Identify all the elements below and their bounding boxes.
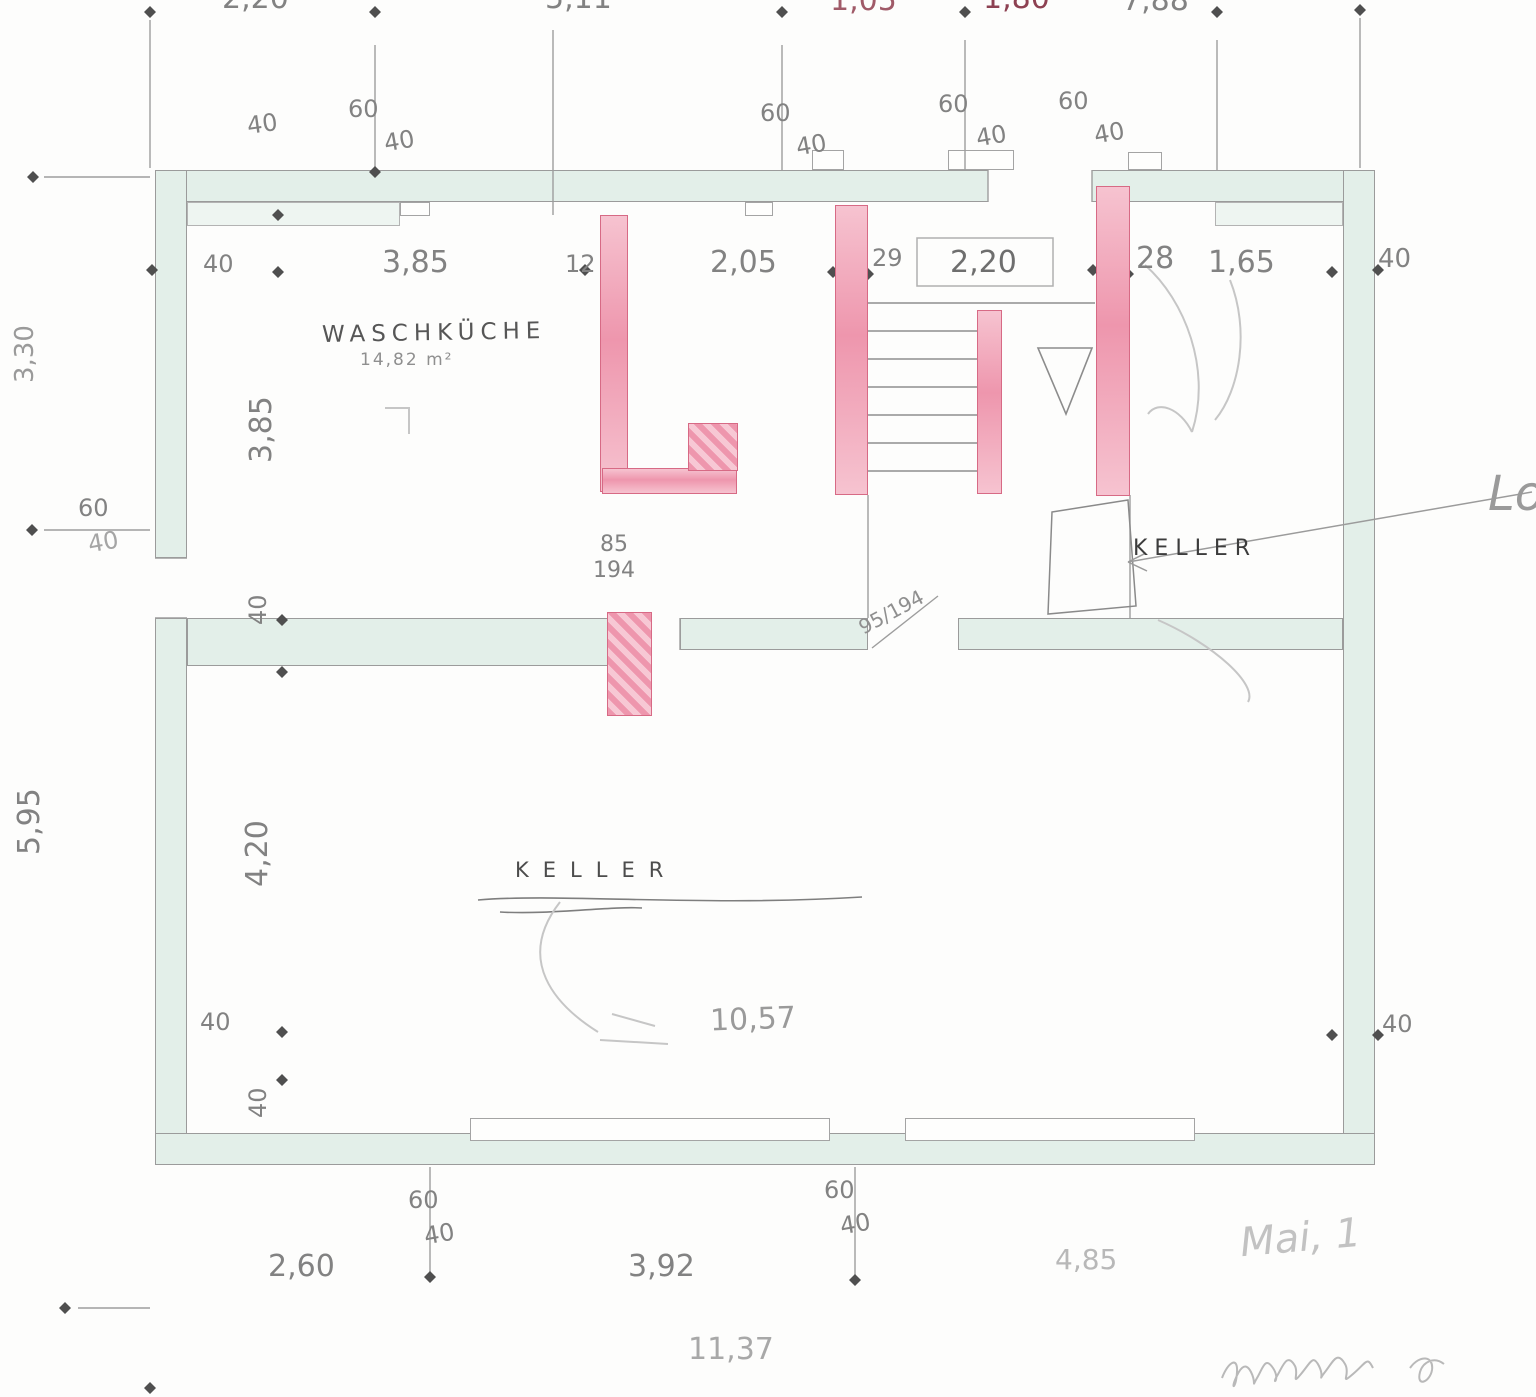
dim-top-inner-385: 3,85 <box>382 248 449 278</box>
wall-pair-label: 60 <box>78 496 109 520</box>
room-label-keller-small: KELLER <box>1133 538 1257 560</box>
dim-interior-width: 10,57 <box>710 1004 797 1037</box>
wall-pair-label: 40 <box>422 1220 456 1249</box>
room-area-waschkueche: 14,82 m² <box>360 352 453 369</box>
wall-pair-label: 60 <box>824 1178 855 1202</box>
dim-top-outer-5: 7,88 <box>1122 0 1189 16</box>
wall-pair-label: 60 <box>348 97 379 121</box>
wall-pair-label: 40 <box>382 127 416 156</box>
dim-left-inner-420: 4,20 <box>243 817 273 887</box>
dim-bottom-260: 2,60 <box>268 1252 335 1282</box>
wall-pair-label: 60 <box>408 1188 439 1212</box>
room-label-waschkueche: WASCHKÜCHE <box>322 320 547 347</box>
dim-left-inner-40c: 40 <box>246 1068 270 1118</box>
red-wall-laundry-vertical <box>600 215 628 492</box>
wall-pair-label: 60 <box>1058 89 1089 113</box>
dim-top-inner-29: 29 <box>872 246 903 270</box>
dim-top-inner-40R: 40 <box>1378 246 1411 272</box>
dim-top-outer-2: 5,11 <box>545 0 612 14</box>
pencil-linework <box>0 0 1536 1397</box>
dim-top-outer-3: 1,05 <box>830 0 897 16</box>
dim-bottom-485: 4,85 <box>1055 1246 1117 1274</box>
dim-left-inner-385: 3,85 <box>247 393 277 463</box>
wall-pair-label: 40 <box>86 528 120 557</box>
red-wall-stair-middle <box>977 310 1002 494</box>
wall-pair-label: 60 <box>760 101 791 125</box>
wall-pair-label: 40 <box>1092 119 1126 148</box>
dim-top-inner-40L: 40 <box>203 252 234 276</box>
red-wall-laundry-horizontal <box>602 468 737 494</box>
handwriting-right-edge: Lou <box>1488 470 1536 518</box>
dim-top-inner-12: 12 <box>565 252 596 276</box>
handwriting-note: Mai, 1 <box>1238 1213 1362 1263</box>
dim-top-outer-4: 1,80 <box>983 0 1050 14</box>
dim-left-inner-40a: 40 <box>246 575 270 625</box>
dim-left-outer-595: 5,95 <box>15 785 45 855</box>
dim-right-inner-40: 40 <box>1382 1012 1413 1036</box>
door-dim-width: 85 <box>600 534 628 556</box>
wall-pair-label: 40 <box>974 122 1008 151</box>
dim-top-inner-165: 1,65 <box>1208 248 1275 278</box>
dim-top-inner-205: 2,05 <box>710 248 777 278</box>
dim-left-inner-40b: 40 <box>200 1010 231 1034</box>
handwritten-signature <box>1222 1358 1444 1386</box>
door-dim-height: 194 <box>593 560 635 582</box>
dim-top-outer-1: 2,20 <box>222 0 289 14</box>
wall-pair-label: 40 <box>245 110 279 138</box>
red-pier-laundry <box>688 423 738 471</box>
wall-pair-label: 60 <box>938 92 969 116</box>
stair-direction-arrow <box>1038 348 1092 414</box>
red-door-pier-middle-wall <box>607 612 652 716</box>
dim-left-outer-330: 3,30 <box>12 313 38 383</box>
wall-pair-label: 40 <box>794 131 828 160</box>
dim-bottom-392: 3,92 <box>628 1252 695 1282</box>
red-wall-stair-right <box>1096 186 1130 496</box>
wall-pair-label: 40 <box>838 1210 872 1239</box>
dim-stair-width: 2,20 <box>950 248 1017 278</box>
floorplan-sheet: 2,20 5,11 1,05 1,80 7,88 40 60 40 60 40 … <box>0 0 1536 1397</box>
room-label-keller-main: KELLER <box>515 860 677 881</box>
dim-bottom-total: 11,37 <box>688 1335 774 1365</box>
dim-top-inner-28: 28 <box>1136 244 1174 274</box>
red-wall-stair-left <box>835 205 868 495</box>
